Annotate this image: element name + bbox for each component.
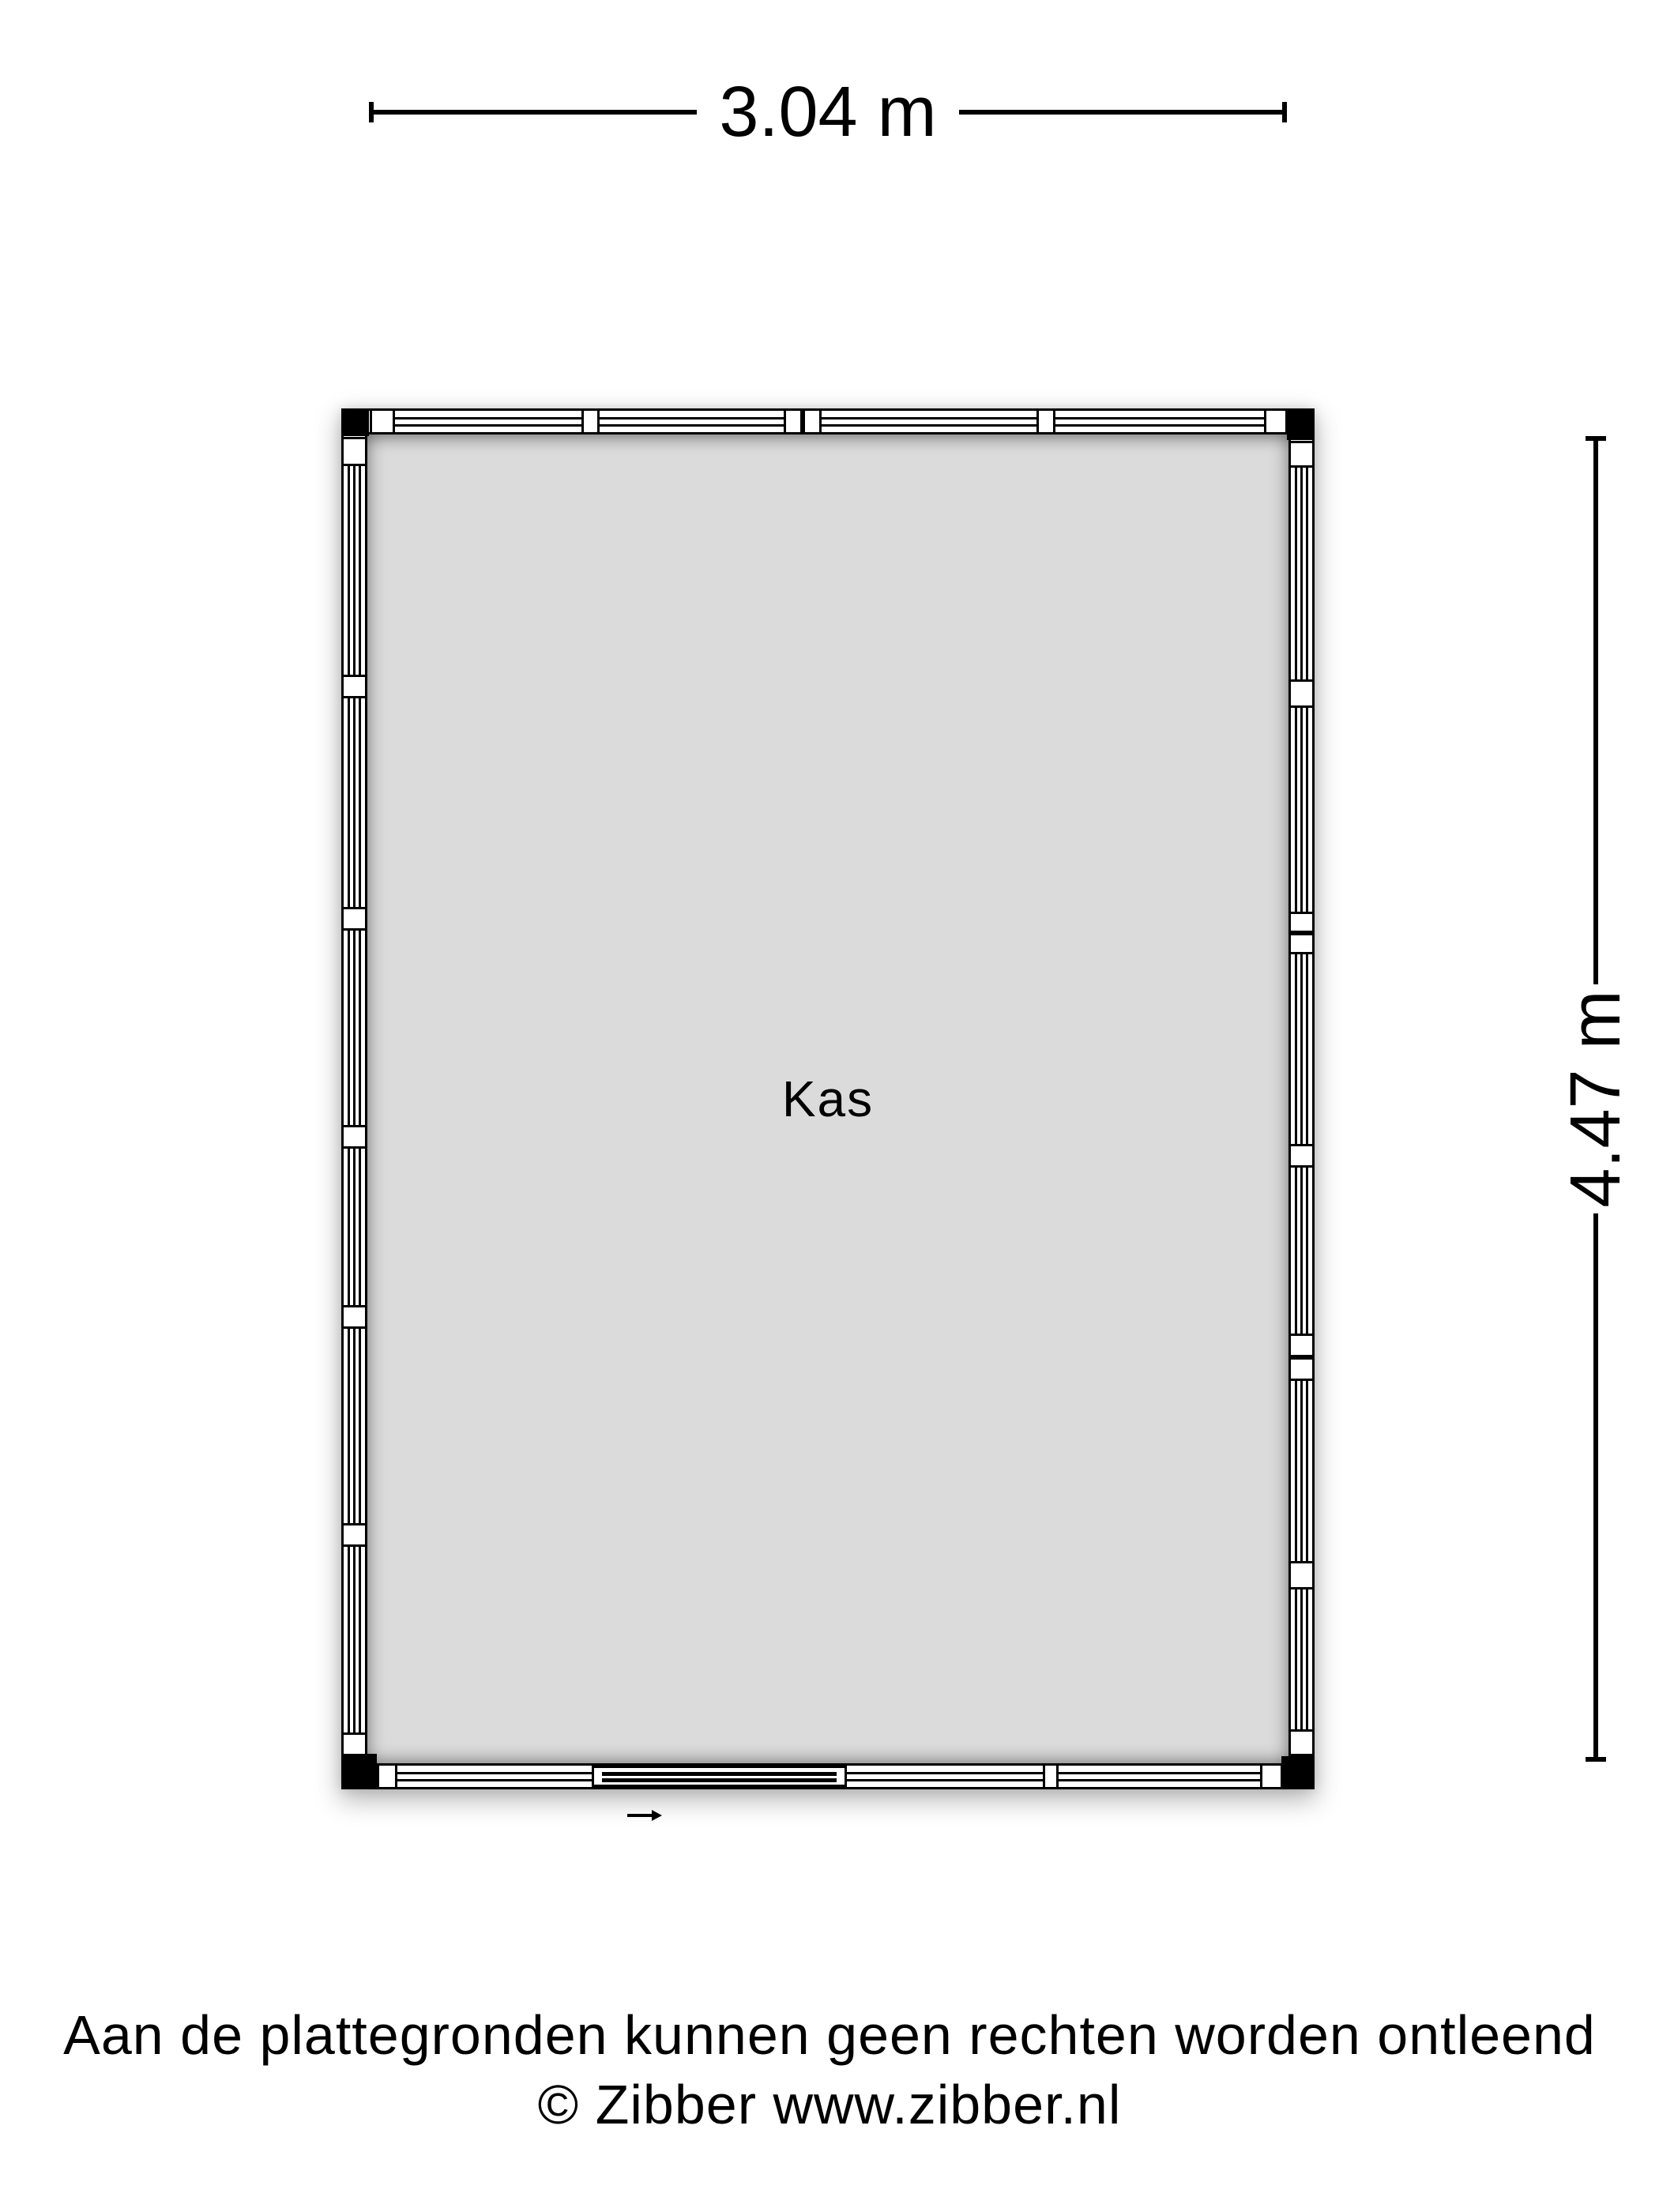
- height-dimension-label: 4.47 m: [1552, 990, 1639, 1207]
- window-segment: [1291, 1381, 1312, 1561]
- room-kas: Kas: [367, 434, 1288, 1763]
- wall-post: [344, 907, 365, 931]
- window-segment: [397, 1766, 592, 1787]
- window-segment: [600, 411, 784, 432]
- window-segment: [1291, 708, 1312, 912]
- wall-post: [1291, 1729, 1312, 1756]
- wall-post: [377, 1766, 397, 1787]
- wall-post: [344, 1732, 365, 1756]
- wall-right: [1288, 408, 1315, 1789]
- window-segment: [1291, 954, 1312, 1144]
- width-dimension: 3.04 m: [369, 68, 1287, 156]
- wall-post: [1291, 441, 1312, 468]
- wall-post: [784, 411, 822, 432]
- wall-post: [1291, 679, 1312, 708]
- wall-left: [341, 408, 367, 1789]
- wall-bottom: [341, 1763, 1315, 1789]
- width-dimension-label: 3.04 m: [719, 69, 936, 156]
- entrance-arrow-icon: [627, 1810, 662, 1821]
- wall-post: [344, 1523, 365, 1547]
- dimension-tick-right: [1282, 102, 1287, 122]
- footer-disclaimer: Aan de plattegronden kunnen geen rechten…: [0, 2000, 1659, 2139]
- wall-post: [1043, 1766, 1059, 1787]
- dimension-line: [374, 110, 697, 115]
- window-segment: [344, 1547, 365, 1732]
- dimension-tick-bottom: [1586, 1757, 1606, 1762]
- window-segment: [1291, 1589, 1312, 1729]
- wall-post: [344, 675, 365, 698]
- height-dimension-label-wrap: 4.47 m: [1575, 984, 1616, 1213]
- window-segment: [1055, 411, 1264, 432]
- wall-post: [1260, 1766, 1283, 1787]
- wall-top: [341, 408, 1315, 434]
- window-segment: [344, 1149, 365, 1305]
- window-segment: [847, 1766, 1043, 1787]
- wall-post: [1291, 1561, 1312, 1589]
- wall-post: [344, 1305, 365, 1329]
- dimension-line: [1593, 1213, 1598, 1757]
- window-segment: [1291, 1168, 1312, 1334]
- door-segment: [592, 1766, 847, 1787]
- height-dimension: 4.47 m: [1575, 436, 1616, 1762]
- window-segment: [344, 466, 365, 675]
- window-segment: [1291, 468, 1312, 679]
- wall-post: [581, 411, 600, 432]
- floorplan-page: 3.04 m Kas 4.47 m Aan de plattegronden k: [0, 0, 1659, 2212]
- copyright-text: © Zibber www.zibber.nl: [0, 2070, 1659, 2139]
- window-segment: [1059, 1766, 1260, 1787]
- arrow-head: [652, 1810, 662, 1821]
- wall-post: [370, 411, 395, 432]
- wall-post: [1291, 1334, 1312, 1381]
- disclaimer-text: Aan de plattegronden kunnen geen rechten…: [0, 2000, 1659, 2070]
- window-segment: [344, 698, 365, 907]
- dimension-line: [1593, 441, 1598, 984]
- wall-post: [1264, 411, 1288, 432]
- wall-post: [1036, 411, 1055, 432]
- floorplan: Kas: [341, 408, 1315, 1789]
- room-label: Kas: [782, 1070, 874, 1128]
- wall-post: [1291, 912, 1312, 954]
- corner-post-bottom-left: [341, 1754, 377, 1789]
- corner-post-top-right: [1287, 408, 1315, 440]
- wall-post: [1291, 1144, 1312, 1168]
- dimension-line: [959, 110, 1282, 115]
- window-segment: [344, 931, 365, 1125]
- wall-post: [344, 437, 365, 466]
- corner-post-top-left: [341, 408, 369, 436]
- window-segment: [344, 1329, 365, 1523]
- arrow-shaft: [627, 1814, 653, 1817]
- corner-post-bottom-right: [1281, 1756, 1315, 1789]
- wall-post: [344, 1125, 365, 1149]
- window-segment: [395, 411, 581, 432]
- window-segment: [822, 411, 1036, 432]
